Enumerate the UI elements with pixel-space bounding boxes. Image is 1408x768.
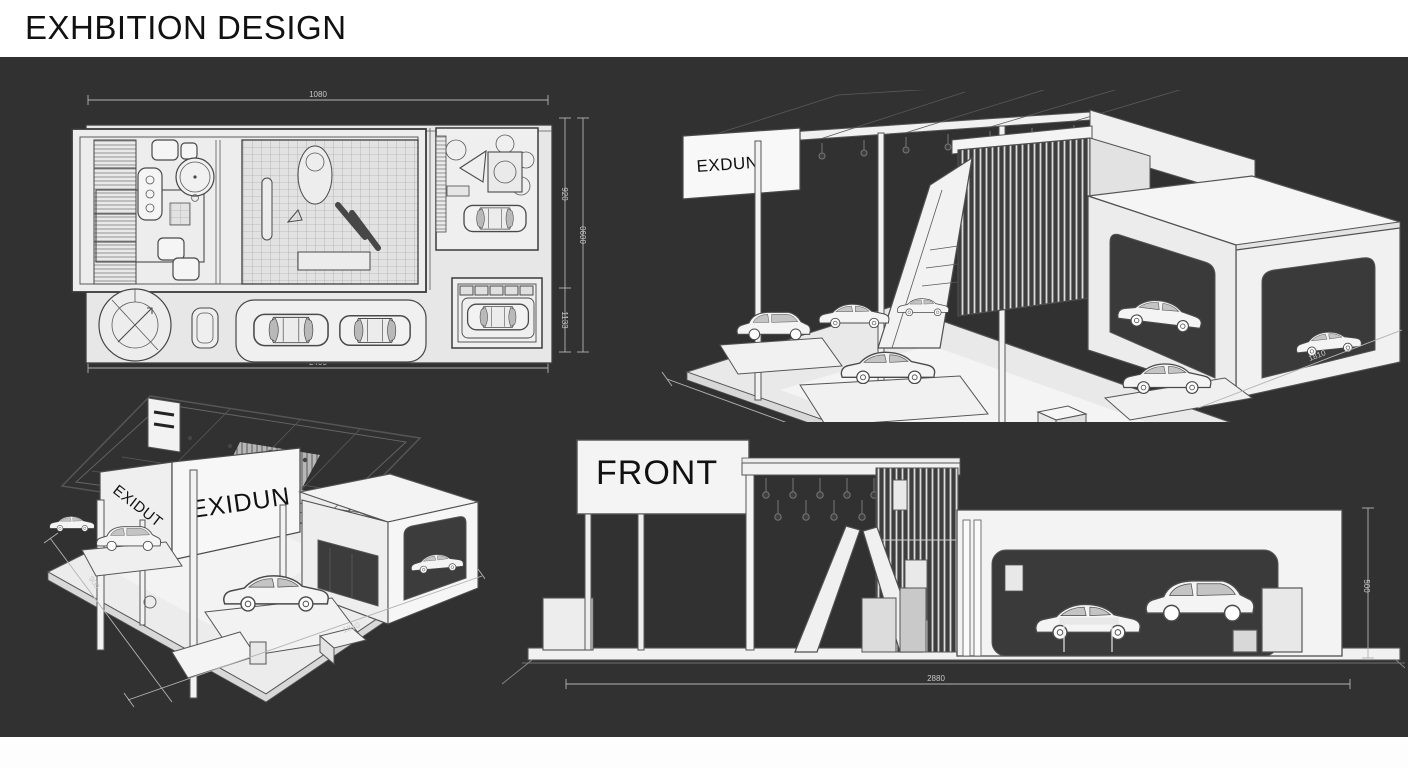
- dim-label-top: 1080: [309, 90, 327, 99]
- iso-top-right-view: EXDUN: [640, 90, 1405, 422]
- front-elevation-view: FRONT: [498, 420, 1405, 710]
- plan-garage-room: [452, 278, 542, 348]
- floor-plan-view: 1080 2400 920 1133 0600: [55, 85, 600, 385]
- car-top-icon: [468, 304, 529, 330]
- car-top-icon: [340, 316, 410, 346]
- car-side-icon: [50, 516, 95, 531]
- front-sign-label: FRONT: [596, 454, 718, 492]
- dim-label-bottom: 2880: [927, 674, 945, 683]
- dim-label-right-upper: 920: [560, 187, 569, 201]
- plan-bottom-band: [99, 289, 426, 362]
- iso-bottom-left-view: EXIDUT EXIDUN: [25, 390, 485, 730]
- right-portal: [957, 510, 1342, 656]
- right-portal: [1088, 176, 1400, 398]
- drawing-canvas: 1080 2400 920 1133 0600: [0, 57, 1408, 737]
- slide-header: EXHBITION DESIGN: [0, 0, 1408, 57]
- booth-sign: EXDUN: [683, 128, 800, 199]
- front-sign: FRONT: [577, 440, 749, 650]
- plan-display-room: [436, 128, 538, 250]
- slat-wall: [958, 138, 1090, 316]
- car-top-icon: [464, 205, 526, 231]
- slide-footer: [0, 737, 1408, 768]
- dim-label-right: 500: [1362, 579, 1371, 593]
- stair-strut: [795, 526, 860, 652]
- dim-label-right-lower: 1133: [560, 311, 569, 329]
- car-top-icon: [254, 314, 328, 345]
- page-title: EXHBITION DESIGN: [25, 9, 347, 47]
- suv-side-icon: [737, 312, 810, 339]
- plan-armchair: [152, 140, 178, 160]
- plan-rug: [170, 203, 190, 225]
- plan-lounge-room: [72, 129, 426, 292]
- dim-label-right-outer: 0600: [578, 226, 587, 244]
